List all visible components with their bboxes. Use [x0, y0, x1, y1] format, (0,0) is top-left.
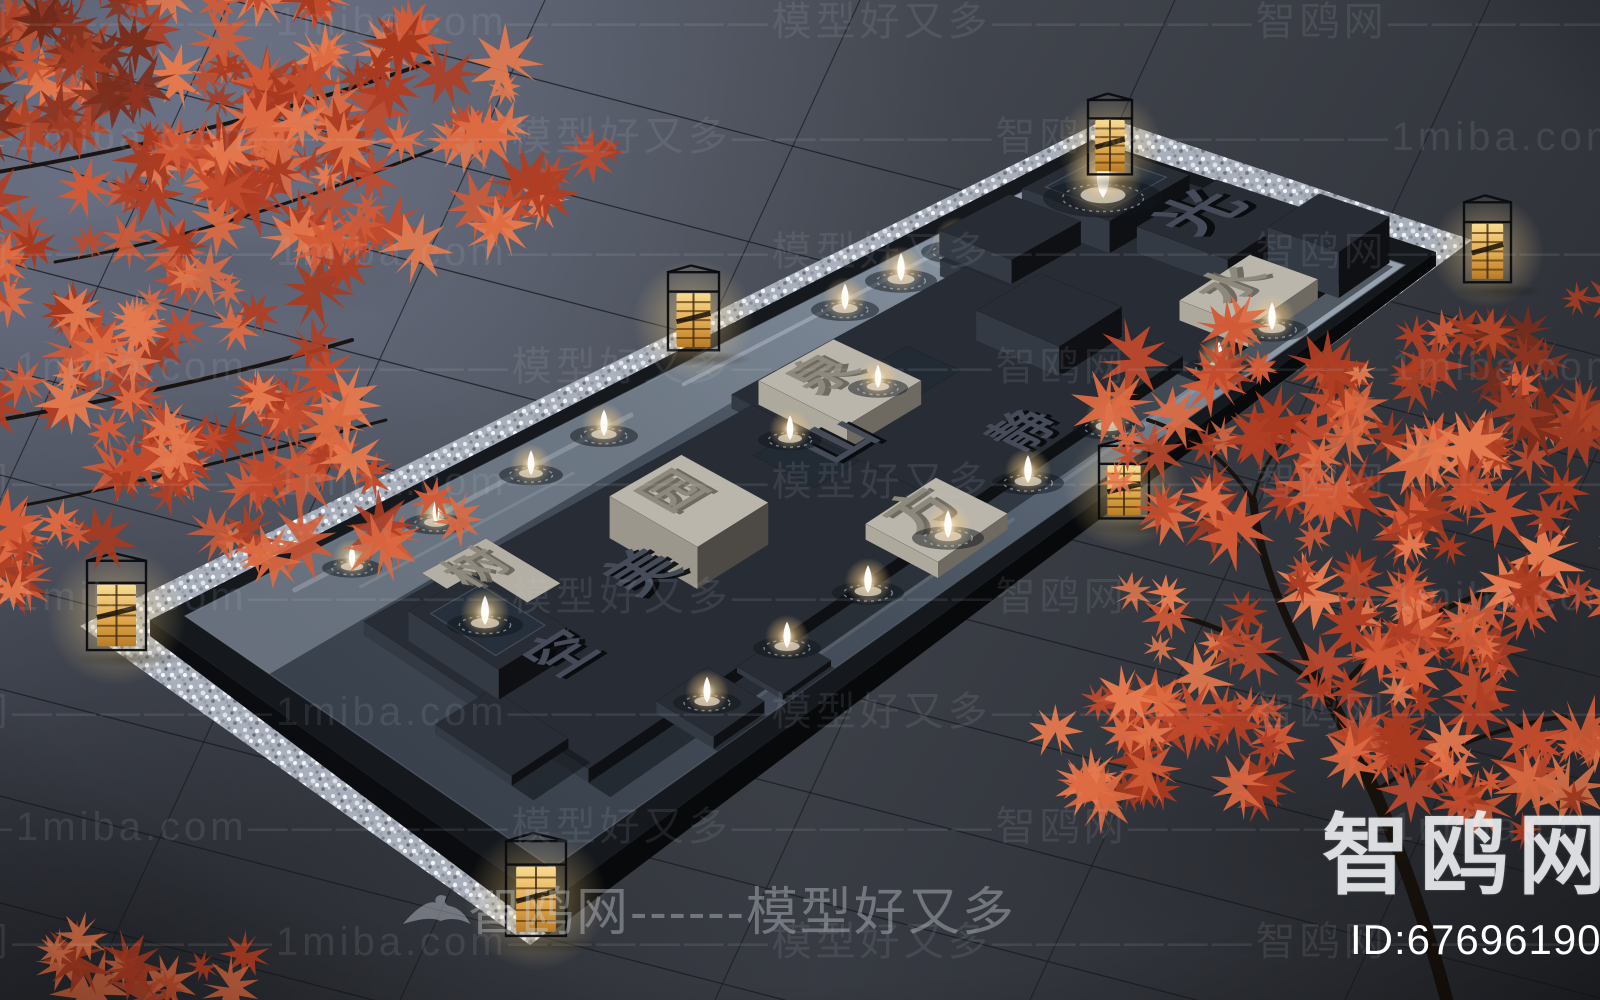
site-logo: 智鸥网	[1322, 812, 1600, 900]
watermark-row: 智鸥网——————1miba.com——————模型好又多——————智鸥网——…	[0, 345, 1600, 389]
render-image: 光光水水泉泉山山静静方方园园美美树树空空 智鸥网——————1miba.com—…	[0, 0, 1600, 1000]
center-watermark: 智鸥网------模型好又多	[403, 884, 1016, 942]
watermark-row: 智鸥网——————1miba.com——————模型好又多——————智鸥网——…	[0, 460, 1600, 504]
watermark-row: 智鸥网——————1miba.com——————模型好又多——————智鸥网——…	[0, 690, 1600, 734]
watermark-row: 智鸥网——————1miba.com——————模型好又多——————智鸥网——…	[0, 115, 1600, 159]
center-watermark-text: 智鸥网------模型好又多	[468, 884, 1016, 942]
watermark-row: 智鸥网——————1miba.com——————模型好又多——————智鸥网——…	[0, 575, 1600, 619]
watermark-row: 智鸥网——————1miba.com——————模型好又多——————智鸥网——…	[0, 0, 1600, 44]
watermark-row: 智鸥网——————1miba.com——————模型好又多——————智鸥网——…	[0, 230, 1600, 274]
model-id: ID:676961909	[1350, 916, 1600, 964]
